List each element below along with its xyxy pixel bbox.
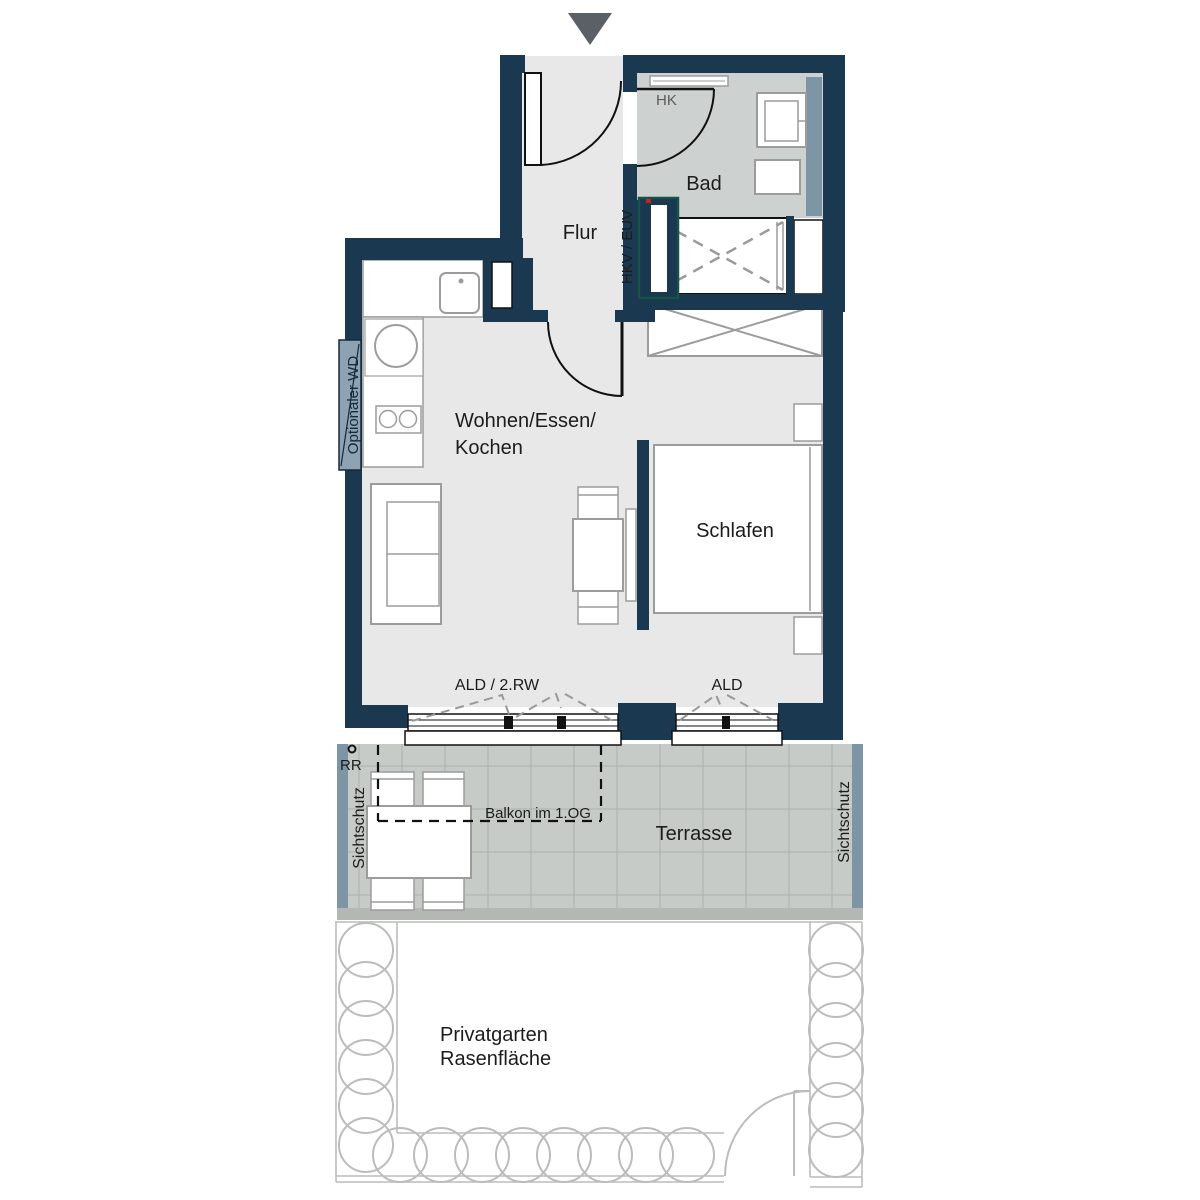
hall-wall-niche <box>492 262 512 308</box>
install-wall-strip <box>806 77 822 216</box>
dining-chair <box>578 487 618 520</box>
terrace-edge-band <box>337 908 863 920</box>
terrace-chair <box>371 877 414 910</box>
dining-table <box>573 519 623 591</box>
label-garden-2: Rasenfläche <box>440 1048 551 1070</box>
label-optional-washer: Optionaler WD <box>345 356 362 455</box>
hedge-bottom <box>373 1128 714 1182</box>
nightstand <box>794 404 822 441</box>
toilet <box>755 160 800 194</box>
label-terrace: Terrasse <box>656 823 733 845</box>
room-label-living-2: Kochen <box>455 437 523 459</box>
garden-area <box>335 922 863 1187</box>
hedge-left <box>339 923 393 1172</box>
room-label-bedroom: Schlafen <box>696 520 774 542</box>
room-label-hall: Flur <box>563 222 598 244</box>
entrance-arrow-icon <box>568 13 612 45</box>
room-label-living-1: Wohnen/Essen/ <box>455 410 596 432</box>
label-window-left: ALD / 2.RW <box>455 677 540 694</box>
entrance-door-leaf <box>525 73 541 165</box>
utility-cabinet <box>639 198 678 298</box>
label-garden-1: Privatgarten <box>440 1024 548 1046</box>
cooktop <box>376 406 421 433</box>
floor-plan-page: Flur Bad Wohnen/Essen/ Kochen Schlafen H… <box>0 0 1200 1200</box>
sideboard <box>626 509 636 601</box>
sink-drain <box>459 279 464 284</box>
label-utility-cabinet: HKV / EUV <box>619 210 636 284</box>
window-right-sill <box>672 731 782 745</box>
terrace-chair <box>423 877 464 910</box>
room-label-bath: Bad <box>686 173 722 195</box>
label-radiator: HK <box>656 92 677 109</box>
shower-niche <box>794 220 823 294</box>
label-window-right: ALD <box>711 677 742 694</box>
label-privacy-right: Sichtschutz <box>836 781 853 863</box>
terrace-area <box>337 744 863 920</box>
terrace-table <box>367 806 471 878</box>
utility-dot <box>646 199 651 203</box>
label-balcony-above: Balkon im 1.OG <box>485 805 591 822</box>
privacy-screen-right <box>852 744 863 908</box>
window-left-sill <box>405 731 621 745</box>
bedroom-furniture <box>648 304 822 654</box>
floor-plan-drawing: Flur Bad Wohnen/Essen/ Kochen Schlafen H… <box>0 0 1200 1200</box>
garden-gate-arc <box>725 1091 810 1176</box>
terrace-chair <box>423 772 464 807</box>
nightstand <box>794 617 822 654</box>
hedge-right <box>809 923 863 1177</box>
label-rain-pipe: RR <box>340 757 362 774</box>
label-privacy-left: Sichtschutz <box>351 787 368 869</box>
